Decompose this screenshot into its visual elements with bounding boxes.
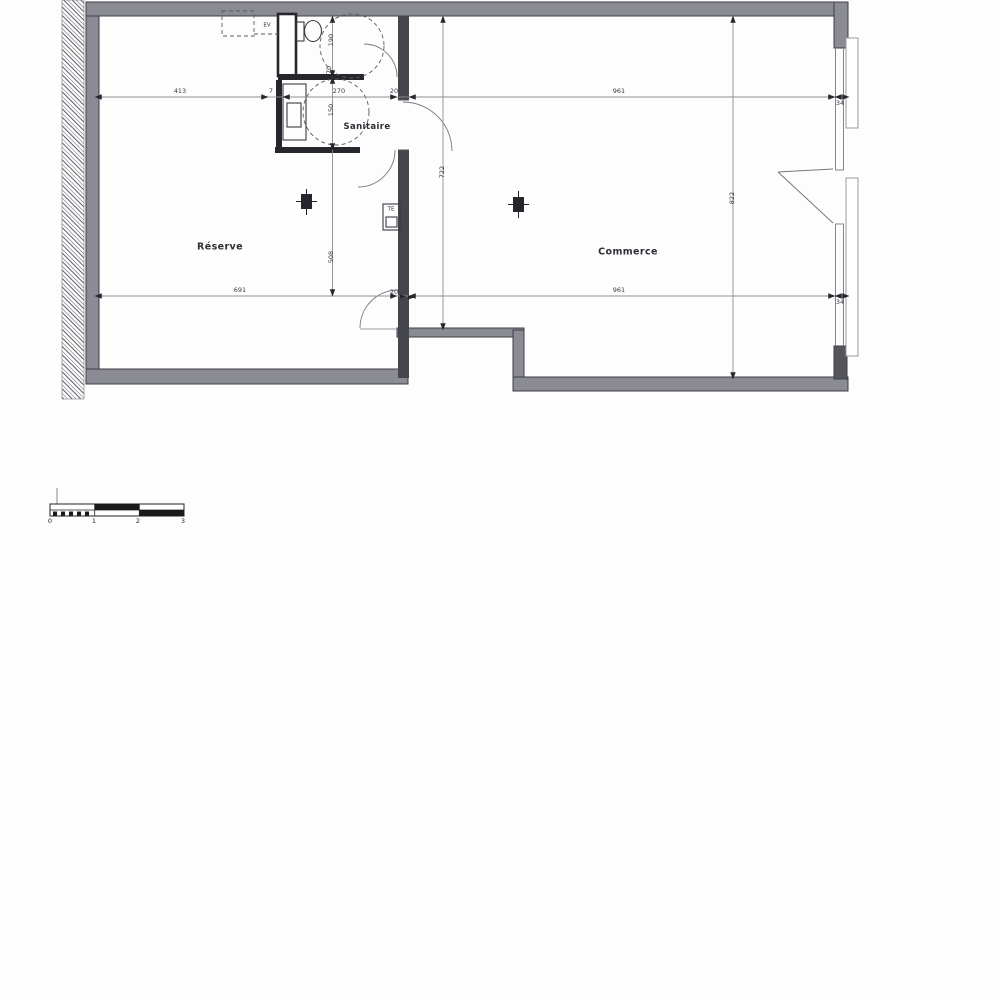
dim-v-190: 190 [328, 34, 335, 46]
scale-bar [50, 488, 184, 516]
dim-top-7: 7 [269, 88, 273, 95]
post-commerce [508, 191, 529, 218]
room-label-reserve: Réserve [197, 242, 243, 252]
dim-top-961: 961 [613, 88, 625, 95]
dim-v-70: 70 [326, 66, 333, 74]
post-reserve [296, 189, 317, 215]
sanitaire-door-arc [358, 150, 395, 187]
ev-label: EV [263, 23, 270, 29]
sink-basin [287, 103, 301, 127]
storefront-glazing [778, 38, 858, 356]
party-wall-hatch [62, 0, 84, 399]
scanned-floor-plan-page: Réserve Sanitaire Commerce EV TE 413 7 2… [0, 0, 1000, 1000]
floor-plan-drawing [0, 0, 1000, 1000]
dim-v-508: 508 [328, 251, 335, 263]
scale-tick-1: 1 [92, 518, 96, 525]
structural-posts [296, 189, 529, 218]
scale-tick-0: 0 [48, 518, 52, 525]
dim-v-150: 150 [328, 104, 335, 116]
dim-top-413: 413 [174, 88, 186, 95]
dividing-wall [398, 16, 409, 378]
commerce-door-arc [403, 102, 452, 151]
wc-bowl [305, 21, 322, 42]
scale-tick-3: 3 [181, 518, 185, 525]
dim-bottom-34: 34 [836, 299, 844, 306]
dim-top-20: 20 [390, 88, 398, 95]
te-label: TE [388, 207, 395, 213]
window-box-upper [846, 38, 858, 128]
dimension-lines [95, 16, 849, 379]
dim-top-270: 270 [333, 88, 345, 95]
te-panel-inner [386, 217, 397, 227]
dim-bottom-691: 691 [234, 287, 246, 294]
scale-tick-2: 2 [136, 518, 140, 525]
room-label-commerce: Commerce [598, 247, 658, 257]
dim-bottom-20: 20 [390, 289, 398, 296]
dim-top-34: 34 [836, 100, 844, 107]
dim-bottom-961: 961 [613, 287, 625, 294]
entrance-door-leaf [778, 169, 833, 223]
dim-v-822: 822 [729, 192, 736, 204]
room-label-sanitaire: Sanitaire [343, 123, 390, 132]
window-box-lower [846, 178, 858, 356]
dim-v-722: 722 [439, 166, 446, 178]
